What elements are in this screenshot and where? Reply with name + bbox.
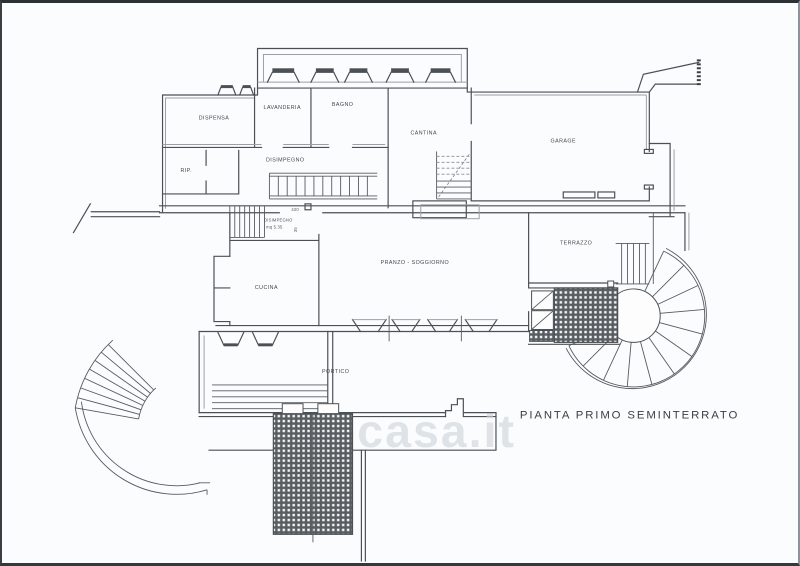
terrace-flight — [616, 213, 654, 284]
room-label-disimpegno-sud: DISIMPEGNO — [264, 218, 293, 223]
floor-plan-sheet: DISPENSA LAVANDERIA BAGNO RIP. DISIMPEGN… — [0, 0, 800, 566]
dimension-label-420: 420 — [291, 207, 299, 212]
room-label-bagno: BAGNO — [332, 102, 353, 108]
room-label-terrazzo: TERRAZZO — [560, 240, 592, 246]
plan-title: PIANTA PRIMO SEMINTERRATO — [520, 410, 739, 422]
dimension-marker — [305, 204, 311, 210]
dimension-label-35: 35 — [293, 227, 298, 233]
room-label-pranzo-soggiorno: PRANZO - SOGGIORNO — [381, 260, 449, 266]
room-area-disimpegno-sud: mq 5.35 — [266, 225, 283, 230]
cucina-south-windows — [218, 332, 278, 346]
room-label-cantina: CANTINA — [410, 131, 437, 137]
floor-plan-drawing: DISPENSA LAVANDERIA BAGNO RIP. DISIMPEGN… — [2, 3, 798, 563]
south-ramp-hatch — [273, 404, 352, 543]
north-window-row — [267, 68, 455, 82]
pranzo-south-windows — [353, 316, 497, 342]
room-label-cucina: CUCINA — [255, 285, 278, 291]
room-label-lavanderia: LAVANDERIA — [264, 105, 301, 111]
room-label-garage: GARAGE — [551, 139, 576, 145]
room-label-disimpegno-nord: DISIMPEGNO — [266, 157, 305, 163]
watermark: casa.it — [357, 405, 516, 457]
terrace-ramp-hatch — [530, 281, 618, 342]
hall-staircase — [269, 173, 377, 199]
room-label-rip: RIP. — [181, 168, 192, 174]
room-label-portico: PORTICO — [322, 369, 349, 375]
cantina-staircase — [437, 151, 472, 198]
small-staircase — [230, 206, 265, 238]
room-label-dispensa: DISPENSA — [199, 116, 230, 122]
